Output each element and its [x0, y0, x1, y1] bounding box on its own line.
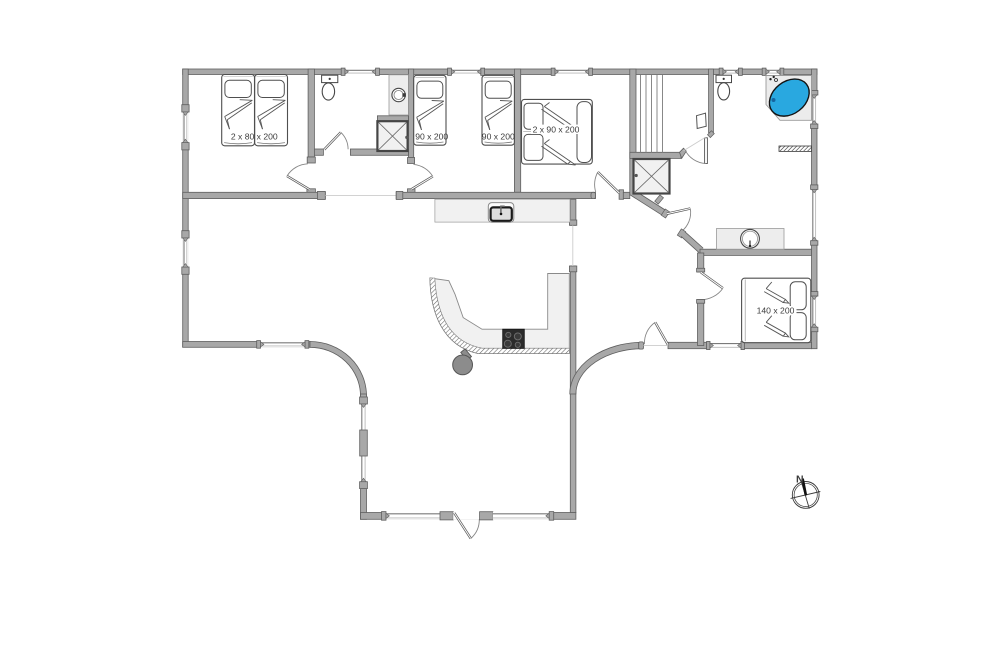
svg-text:90 x 200: 90 x 200 [415, 131, 448, 141]
svg-text:2 x 90 x 200: 2 x 90 x 200 [533, 124, 580, 134]
svg-text:90 x 200: 90 x 200 [482, 131, 515, 141]
svg-text:N: N [796, 474, 804, 486]
svg-text:140 x 200: 140 x 200 [757, 306, 795, 316]
svg-text:2 x 80 x 200: 2 x 80 x 200 [231, 132, 278, 142]
